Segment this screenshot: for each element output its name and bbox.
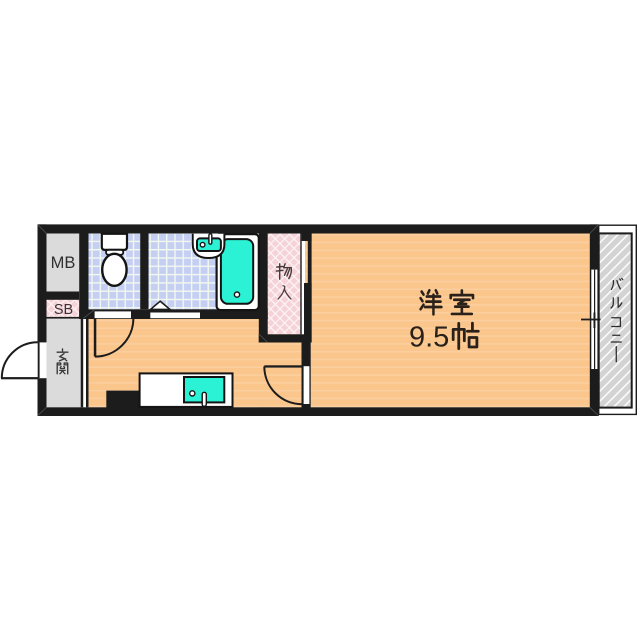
svg-text:MB: MB [51, 254, 76, 272]
svg-text:SB: SB [54, 302, 73, 318]
svg-text:9.5: 9.5 [409, 322, 449, 354]
